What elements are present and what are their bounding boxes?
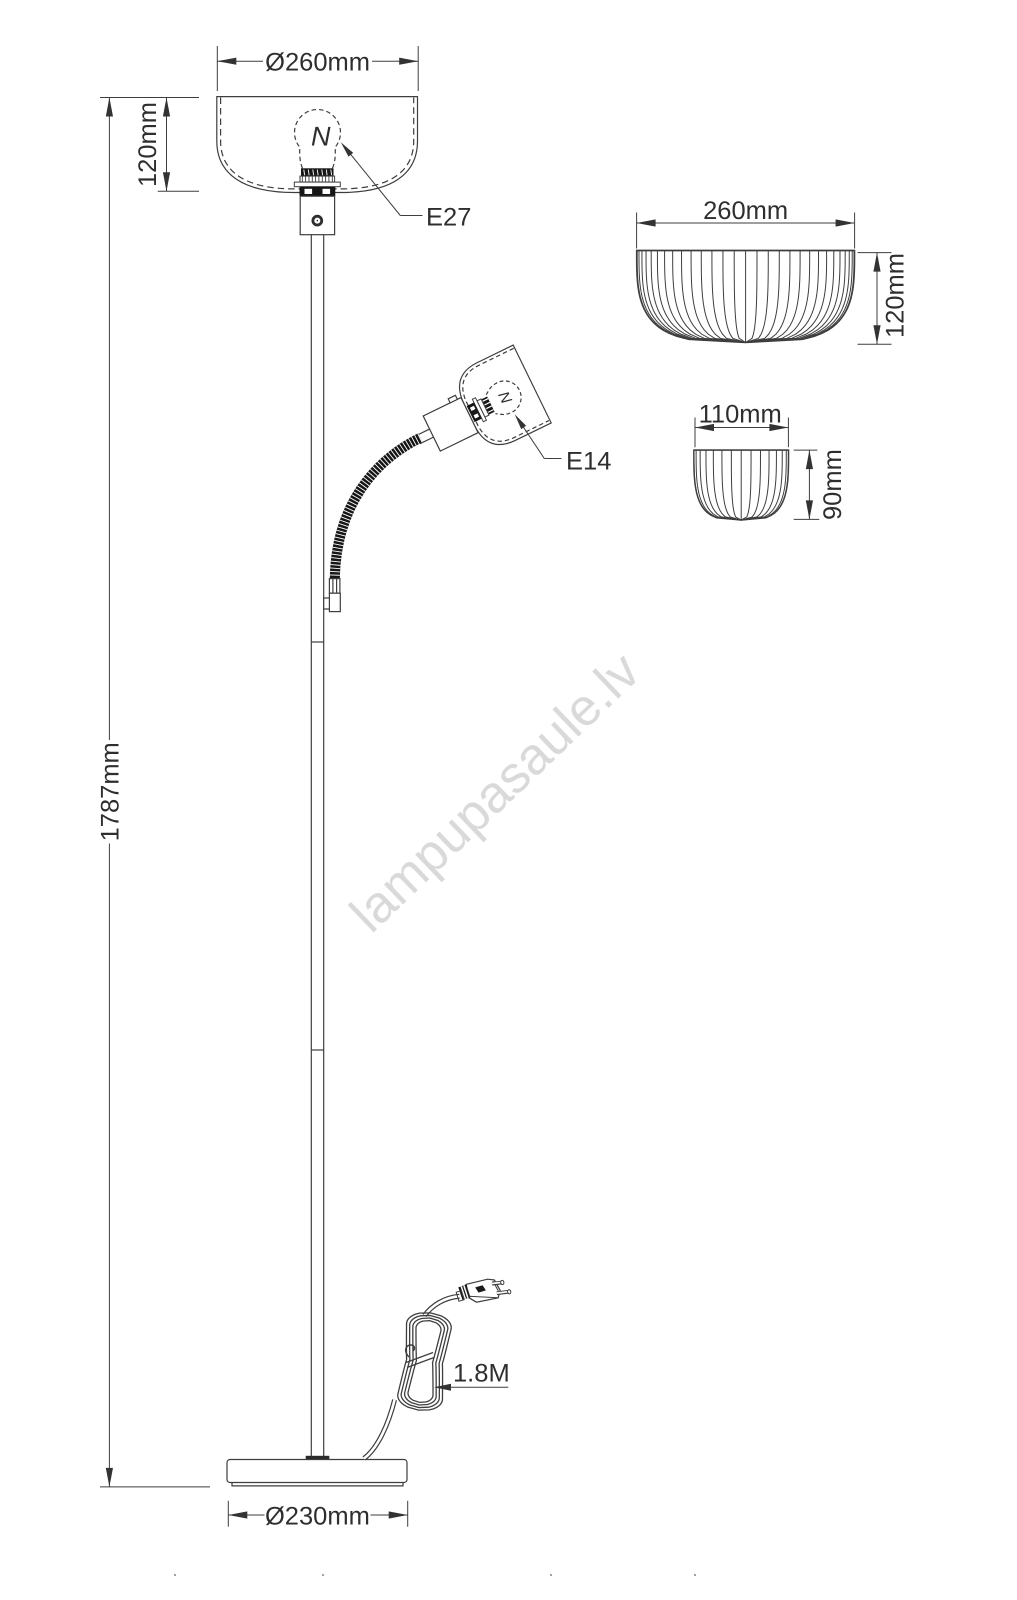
svg-text:1787mm: 1787mm [97, 742, 125, 841]
svg-text:120mm: 120mm [134, 102, 162, 187]
svg-text:90mm: 90mm [819, 449, 847, 520]
svg-text:E14: E14 [566, 448, 611, 476]
svg-text:E27: E27 [426, 204, 471, 232]
svg-text:lampupasaule.lv: lampupasaule.lv [339, 642, 651, 944]
svg-text:Ø260mm: Ø260mm [265, 49, 370, 77]
svg-text:N: N [311, 122, 331, 152]
svg-text:110mm: 110mm [699, 401, 782, 429]
svg-text:Ø230mm: Ø230mm [265, 1502, 370, 1530]
svg-text:260mm: 260mm [703, 197, 788, 225]
svg-text:120mm: 120mm [882, 253, 910, 338]
svg-text:1.8M: 1.8M [453, 1360, 510, 1388]
